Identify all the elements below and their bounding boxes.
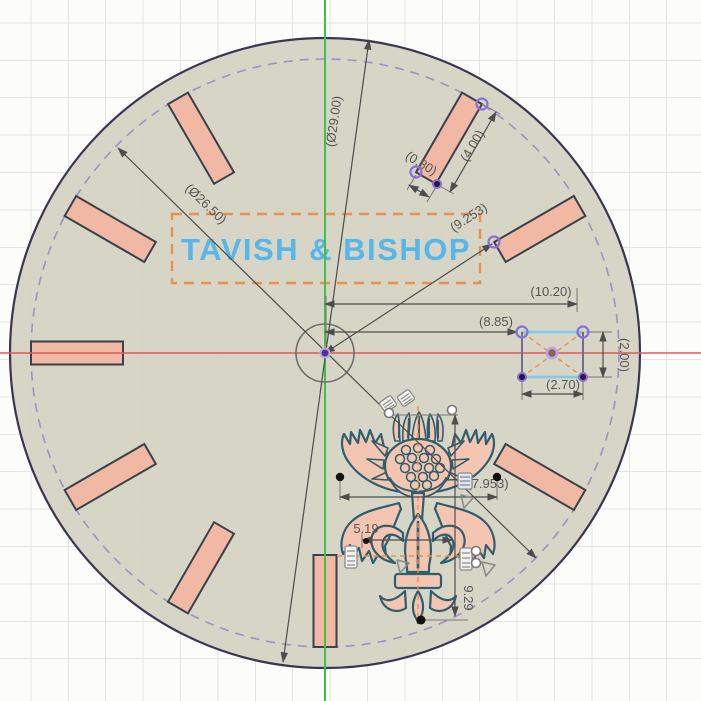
sketch-svg: TAVISH & BISHOP: [0, 0, 701, 701]
window-bottom-left-point[interactable]: [518, 373, 526, 381]
label-fleur-width[interactable]: 5.19: [353, 521, 378, 536]
window-bottom-right-point[interactable]: [579, 373, 587, 381]
origin-point[interactable]: [321, 349, 330, 358]
fix-constraint-icon[interactable]: [458, 473, 472, 489]
cad-canvas[interactable]: TAVISH & BISHOP: [0, 0, 701, 701]
emblem-left-point[interactable]: [336, 473, 344, 481]
emblem-side-point-1[interactable]: [472, 547, 481, 556]
window-center-point[interactable]: [547, 348, 557, 358]
label-emblem-height[interactable]: 9.29: [461, 585, 476, 610]
fleur-left-point[interactable]: [363, 538, 369, 544]
fix-constraint-icon[interactable]: [460, 548, 472, 570]
label-emblem-width[interactable]: (7.953): [467, 476, 508, 491]
emblem-side-point-2[interactable]: [472, 559, 481, 568]
emblem-right-point[interactable]: [493, 473, 501, 481]
marker-anchor-point[interactable]: [433, 180, 441, 188]
emblem-top-right-point[interactable]: [448, 406, 457, 415]
label-window-width[interactable]: (2.70): [546, 377, 580, 392]
fix-constraint-icon[interactable]: [345, 546, 357, 568]
emblem-bottom-point[interactable]: [417, 616, 426, 625]
label-window-far[interactable]: (10.20): [530, 284, 571, 299]
emblem-top-left-point[interactable]: [385, 409, 394, 418]
label-window-near[interactable]: (8.85): [479, 314, 513, 329]
label-window-height[interactable]: (2.00): [617, 338, 632, 372]
